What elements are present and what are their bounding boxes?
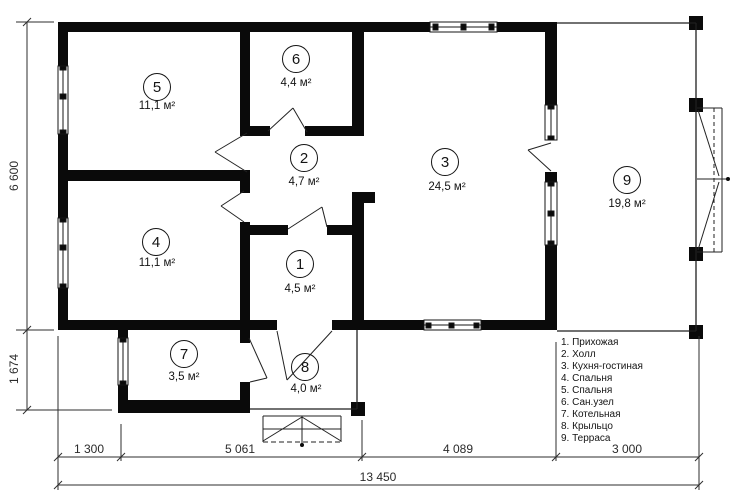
room-number: 7	[180, 346, 188, 363]
legend-item: 5. Спальня	[561, 385, 691, 397]
dim-label-total-width: 13 450	[360, 470, 397, 484]
room-number: 5	[153, 79, 161, 96]
door-swing-icon	[268, 108, 307, 132]
window-icon	[545, 182, 557, 245]
room-number: 1	[296, 256, 304, 273]
dim-label-segment: 4 089	[443, 442, 473, 456]
room-circle-3: 3	[431, 148, 459, 176]
floor-plan-page: 1 2 3 4 5 6 7 8 9 4,5 м² 4,7 м² 24,5 м² …	[0, 0, 732, 502]
room-area-label: 24,5 м²	[428, 181, 465, 193]
room-area-label: 11,1 м²	[139, 257, 175, 269]
room-circle-7: 7	[170, 340, 198, 368]
legend-item: 9. Терраса	[561, 433, 691, 445]
room-area-label: 19,8 м²	[608, 198, 645, 210]
room-area-label: 4,5 м²	[285, 283, 316, 295]
window-icon	[118, 338, 128, 385]
room-number: 8	[301, 359, 309, 376]
room-area-label: 4,0 м²	[291, 383, 322, 395]
terrace-stairs-icon	[697, 108, 730, 252]
door-swing-icon	[528, 143, 551, 171]
door-swing-icon	[221, 191, 244, 222]
room-circle-4: 4	[142, 228, 170, 256]
porch-steps-icon	[263, 416, 341, 447]
legend-item: 1. Прихожая	[561, 337, 691, 349]
dim-label-segment: 5 061	[225, 442, 255, 456]
door-swing-icon	[249, 338, 267, 382]
room-number: 3	[441, 154, 449, 171]
door-swings	[215, 108, 551, 382]
legend-item: 3. Кухня-гостиная	[561, 361, 691, 373]
window-icon	[58, 218, 68, 288]
room-number: 4	[152, 234, 160, 251]
room-circle-9: 9	[613, 166, 641, 194]
room-area-label: 11,1 м²	[139, 100, 175, 112]
room-number: 2	[300, 150, 308, 167]
room-circle-8: 8	[291, 353, 319, 381]
legend-item: 6. Сан.узел	[561, 397, 691, 409]
room-area-label: 4,4 м²	[281, 77, 312, 89]
dim-label-main-height: 6 600	[7, 161, 21, 191]
room-number: 6	[292, 51, 300, 68]
window-icon	[545, 105, 557, 140]
door-swing-icon	[288, 207, 327, 229]
room-area-label: 4,7 м²	[289, 176, 320, 188]
window-icon	[430, 22, 497, 32]
legend-item: 7. Котельная	[561, 409, 691, 421]
room-circle-6: 6	[282, 45, 310, 73]
legend-item: 8. Крыльцо	[561, 421, 691, 433]
door-swing-icon	[215, 133, 247, 172]
room-circle-2: 2	[290, 144, 318, 172]
room-legend: 1. Прихожая 2. Холл 3. Кухня-гостиная 4.…	[561, 337, 691, 445]
dim-label-segment: 1 300	[74, 442, 104, 456]
room-circle-1: 1	[286, 250, 314, 278]
window-icon	[424, 320, 481, 330]
room-circle-5: 5	[143, 73, 171, 101]
room-number: 9	[623, 172, 631, 189]
room-area-label: 3,5 м²	[169, 371, 200, 383]
legend-item: 4. Спальня	[561, 373, 691, 385]
dim-label-annex-height: 1 674	[7, 354, 21, 384]
legend-item: 2. Холл	[561, 349, 691, 361]
window-icon	[58, 66, 68, 134]
